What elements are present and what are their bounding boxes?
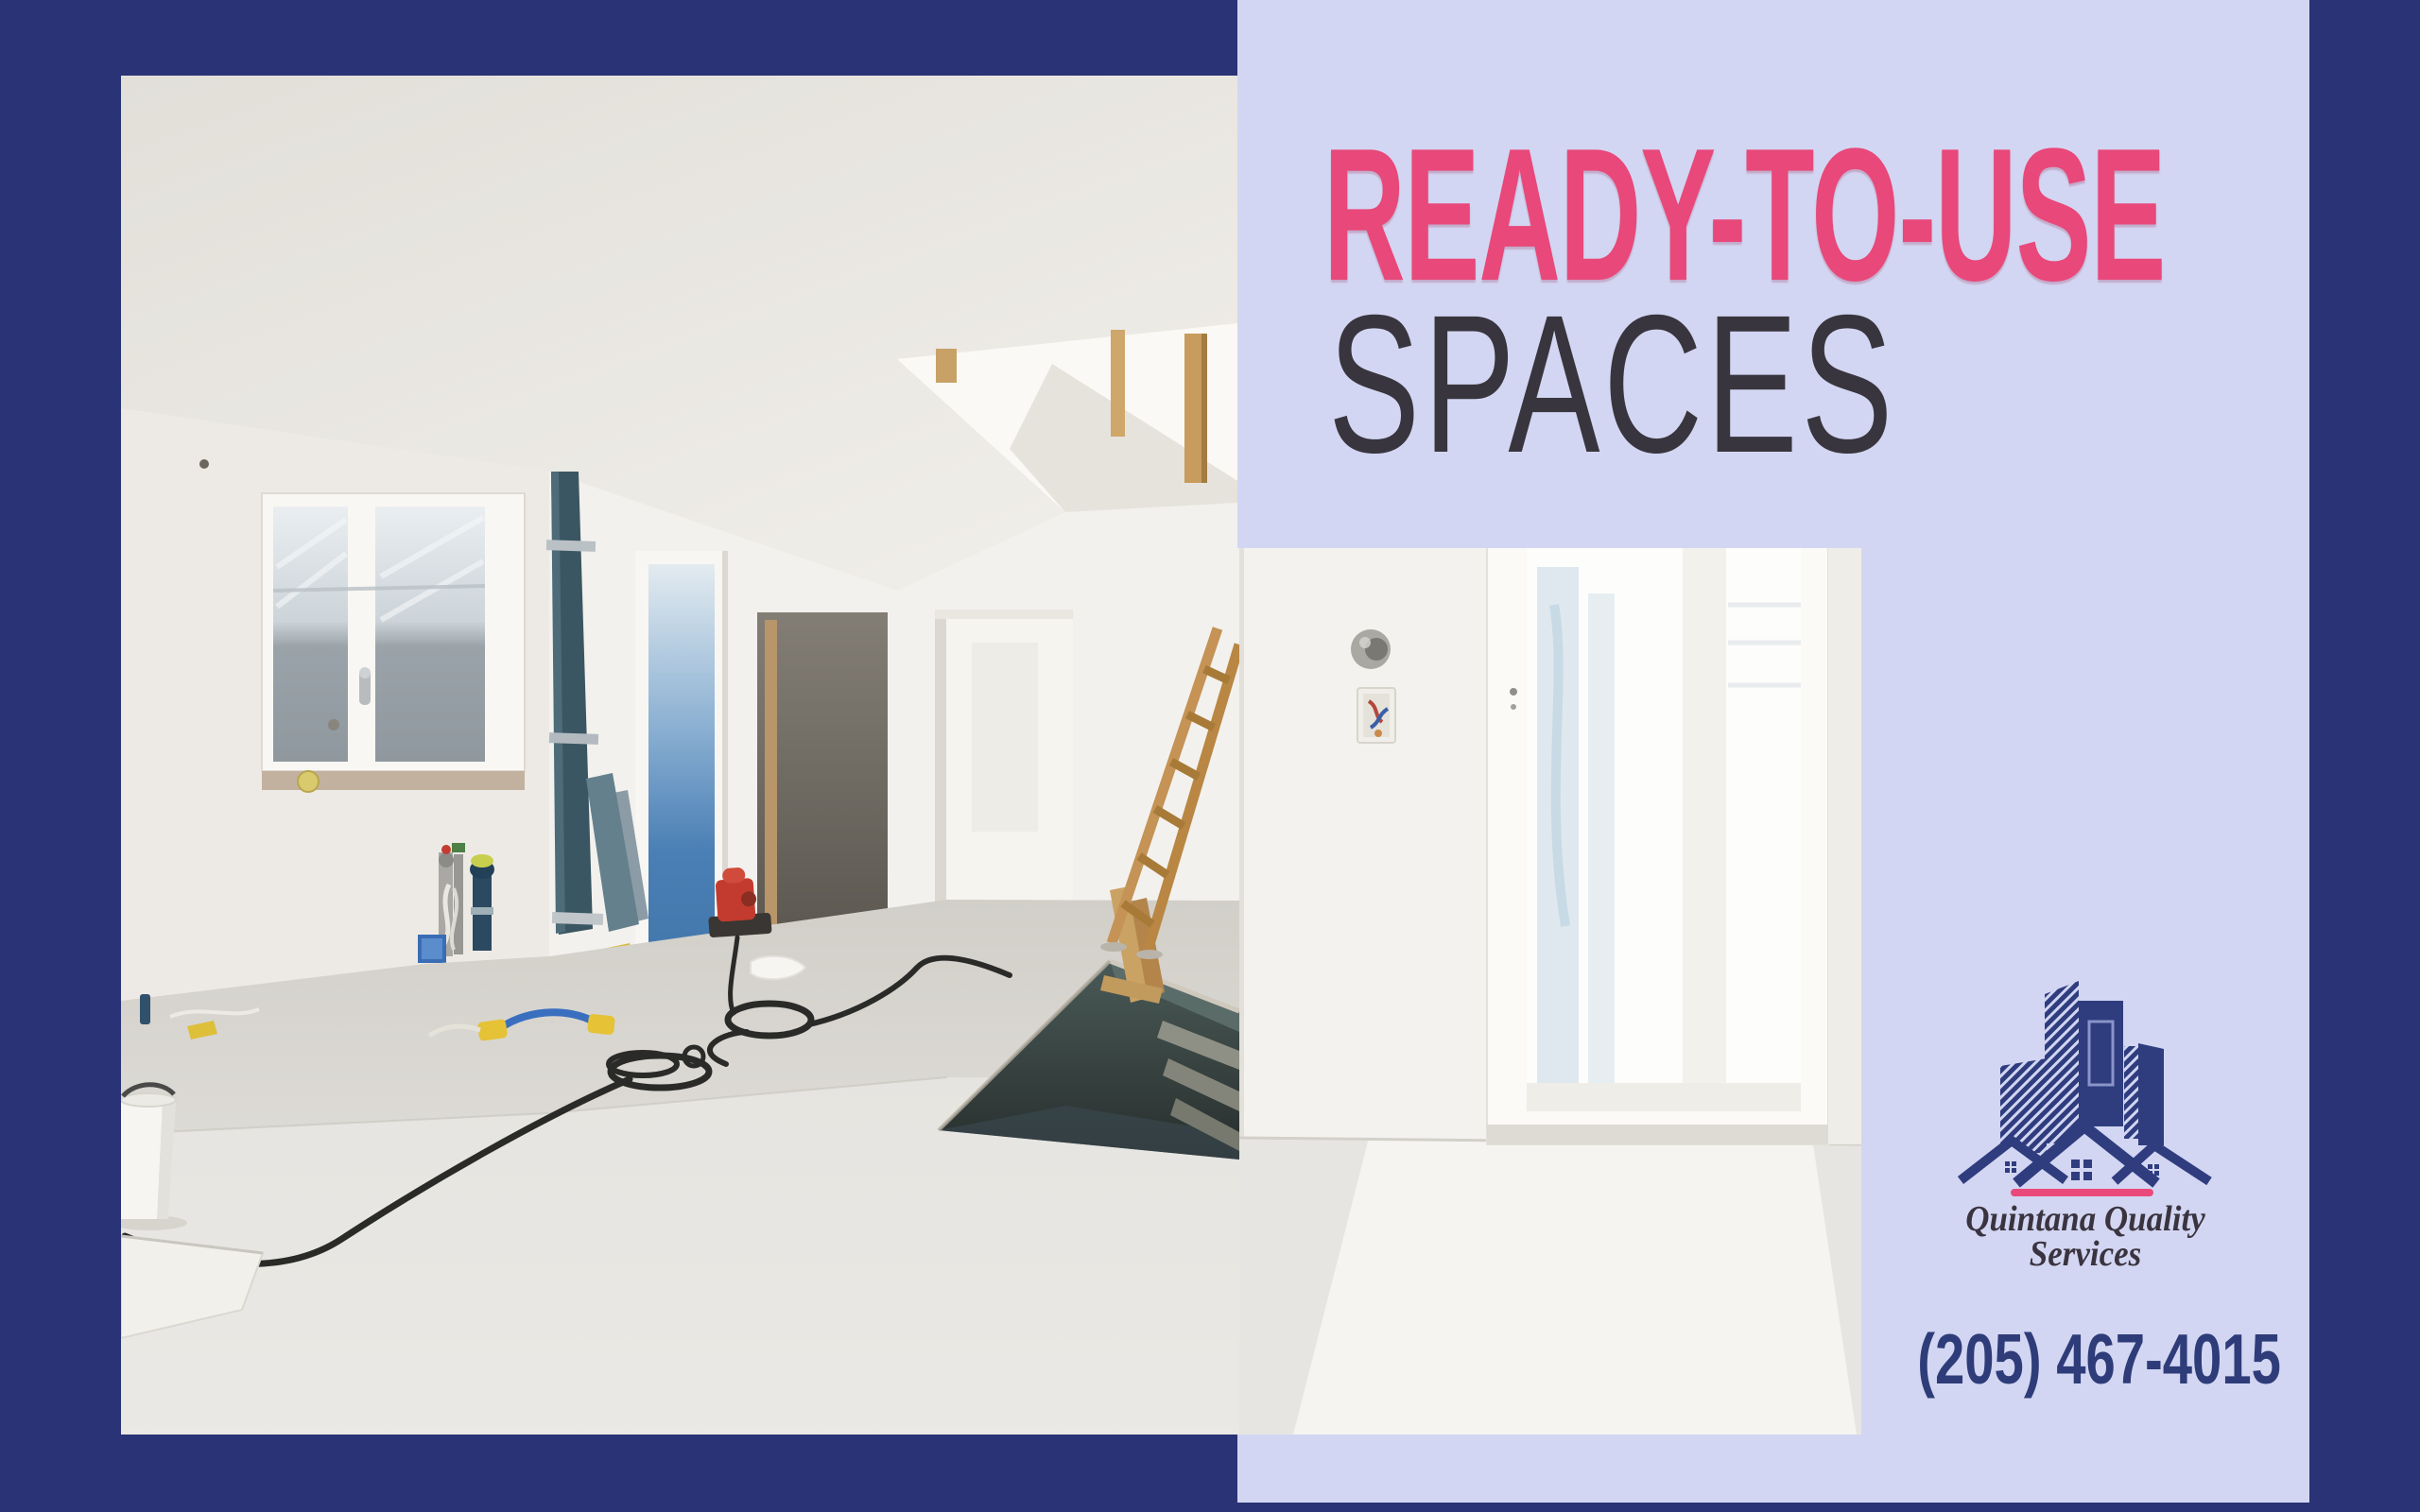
brand-name-line2: Services	[1879, 1237, 2291, 1272]
logo-underline	[2011, 1189, 2153, 1196]
brand-name: Quintana Quality Services	[1879, 1202, 2291, 1272]
brand-name-line1: Quintana Quality	[1879, 1202, 2291, 1237]
brand-logo	[1951, 973, 2216, 1200]
phone-number: (205) 467-4015	[1917, 1324, 2254, 1395]
buildings-houses-logo-icon	[1951, 973, 2216, 1200]
headline-line2: SPACES	[1328, 286, 1896, 483]
flyer-canvas: READY-TO-USE SPACES	[0, 0, 2420, 1512]
